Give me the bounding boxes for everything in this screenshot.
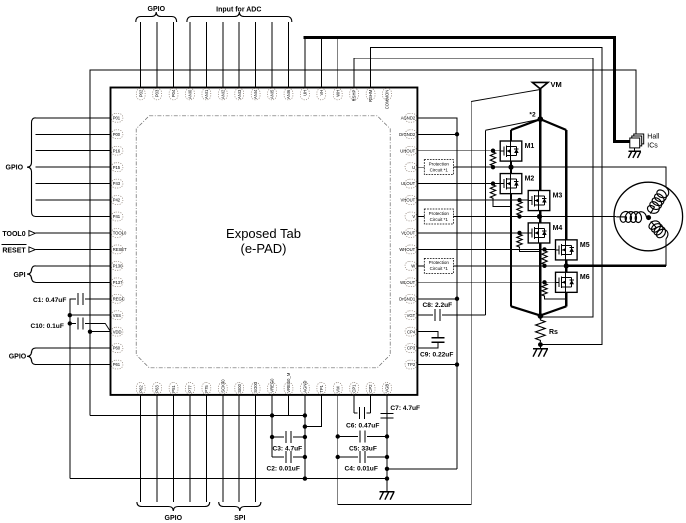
svg-text:RSHP: RSHP [352,89,357,101]
svg-text:SO00: SO00 [253,381,258,392]
svg-text:ANI1: ANI1 [204,89,209,99]
svg-text:GPIO: GPIO [165,515,183,522]
svg-text:P61: P61 [113,362,121,367]
svg-text:DrGND1: DrGND1 [399,296,416,301]
svg-text:VLOUT: VLOUT [401,231,415,236]
svg-text:V: V [412,214,415,219]
svg-text:P77: P77 [188,385,193,393]
svg-text:VH: VH [319,90,324,96]
svg-text:C8: 2.2uF: C8: 2.2uF [423,302,453,309]
svg-text:TOOL0: TOOL0 [2,231,25,238]
svg-text:P51: P51 [171,385,176,393]
svg-text:VREG0: VREG0 [270,378,275,393]
svg-text:VHOUT: VHOUT [401,198,416,203]
svg-text:WHOUT: WHOUT [399,247,415,252]
svg-text:P03: P03 [155,89,160,97]
svg-text:C7: 4.7uF: C7: 4.7uF [390,405,420,412]
svg-text:C1: 0.47uF: C1: 0.47uF [33,297,66,304]
svg-text:M1: M1 [525,143,535,150]
svg-text:P01: P01 [113,115,121,120]
svg-text:DrGND2: DrGND2 [399,132,416,137]
svg-text:CP1: CP1 [352,384,357,393]
svg-text:ANI2: ANI2 [220,89,225,99]
svg-text:Circuit *1: Circuit *1 [430,266,449,271]
svg-text:WH: WH [335,90,340,97]
svg-text:RSHM: RSHM [368,89,373,102]
svg-text:AGND2: AGND2 [401,115,416,120]
svg-text:M3: M3 [553,192,563,199]
svg-text:SI00: SI00 [237,383,242,392]
svg-text:COMMON: COMMON [385,90,390,110]
svg-text:TP1: TP1 [319,384,324,392]
svg-text:RESET: RESET [113,247,127,252]
svg-text:TOOL0: TOOL0 [113,231,127,236]
svg-text:Protection: Protection [429,260,450,265]
svg-text:C6: 0.47uF: C6: 0.47uF [346,423,379,430]
svg-text:GPI: GPI [13,272,25,279]
svg-text:(e-PAD): (e-PAD) [241,241,287,256]
svg-text:REGC: REGC [113,296,125,301]
svg-text:UH: UH [303,90,308,96]
svg-text:M2: M2 [525,176,535,183]
svg-text:P62: P62 [138,385,143,393]
svg-text:VSS: VSS [113,313,122,318]
svg-text:Hall: Hall [647,134,660,141]
svg-text:U: U [412,165,415,170]
svg-text:P137: P137 [113,280,123,285]
svg-text:P00: P00 [113,132,121,137]
svg-text:P43: P43 [113,181,121,186]
svg-text:UHOUT: UHOUT [400,148,415,153]
svg-text:C5: 33uF: C5: 33uF [349,446,377,453]
svg-text:SPI: SPI [234,515,245,522]
svg-text:VREG0_M: VREG0_M [286,372,291,393]
svg-text:CP4: CP4 [407,329,416,334]
svg-text:VGT: VGT [407,313,416,318]
svg-text:W: W [411,263,415,268]
svg-text:P41: P41 [113,214,121,219]
svg-text:CP3: CP3 [407,346,416,351]
svg-text:GPIO: GPIO [9,354,27,361]
svg-text:M6: M6 [580,274,590,281]
svg-text:P75: P75 [204,385,209,393]
svg-text:Exposed Tab: Exposed Tab [226,226,301,241]
svg-text:C9: 0.22uF: C9: 0.22uF [420,352,453,359]
svg-text:VM: VM [551,80,562,89]
svg-text:C2: 0.01uF: C2: 0.01uF [267,466,300,473]
svg-text:Circuit *1: Circuit *1 [430,217,449,222]
svg-text:C4: 0.01uF: C4: 0.01uF [345,466,378,473]
svg-text:*2: *2 [529,111,536,118]
svg-text:SCK00: SCK00 [220,379,225,393]
svg-text:M5: M5 [580,242,590,249]
svg-text:ANI6: ANI6 [286,89,291,99]
svg-text:P60: P60 [113,346,121,351]
svg-text:C3: 4.7uF: C3: 4.7uF [273,446,303,453]
svg-text:P02: P02 [138,89,143,97]
svg-text:AGND: AGND [303,381,308,393]
svg-text:P63: P63 [155,385,160,393]
svg-text:TP2: TP2 [408,362,416,367]
svg-text:GPIO: GPIO [6,165,24,172]
svg-text:Circuit *1: Circuit *1 [430,167,449,172]
svg-text:ANI0: ANI0 [188,89,193,99]
svg-text:VM: VM [335,386,340,393]
svg-text:WLOUT: WLOUT [400,280,416,285]
svg-text:CP2: CP2 [368,384,373,393]
svg-text:M4: M4 [553,225,563,232]
svg-text:Rs: Rs [549,329,558,336]
svg-text:ANI3: ANI3 [237,89,242,99]
svg-text:Protection: Protection [429,211,450,216]
svg-text:Protection: Protection [429,161,450,166]
svg-text:RESET: RESET [2,248,26,255]
svg-text:VDD: VDD [113,329,122,334]
svg-text:ANI4: ANI4 [253,89,258,99]
svg-text:ULOUT: ULOUT [401,181,416,186]
svg-text:VGB: VGB [385,384,390,393]
svg-text:P130: P130 [113,263,123,268]
svg-text:P04: P04 [171,89,176,97]
svg-text:P42: P42 [113,198,121,203]
svg-text:ANI5: ANI5 [270,89,275,99]
svg-text:P16: P16 [113,148,121,153]
svg-text:P15: P15 [113,165,121,170]
svg-text:ICs: ICs [647,143,658,150]
svg-text:C10: 0.1uF: C10: 0.1uF [31,323,64,330]
